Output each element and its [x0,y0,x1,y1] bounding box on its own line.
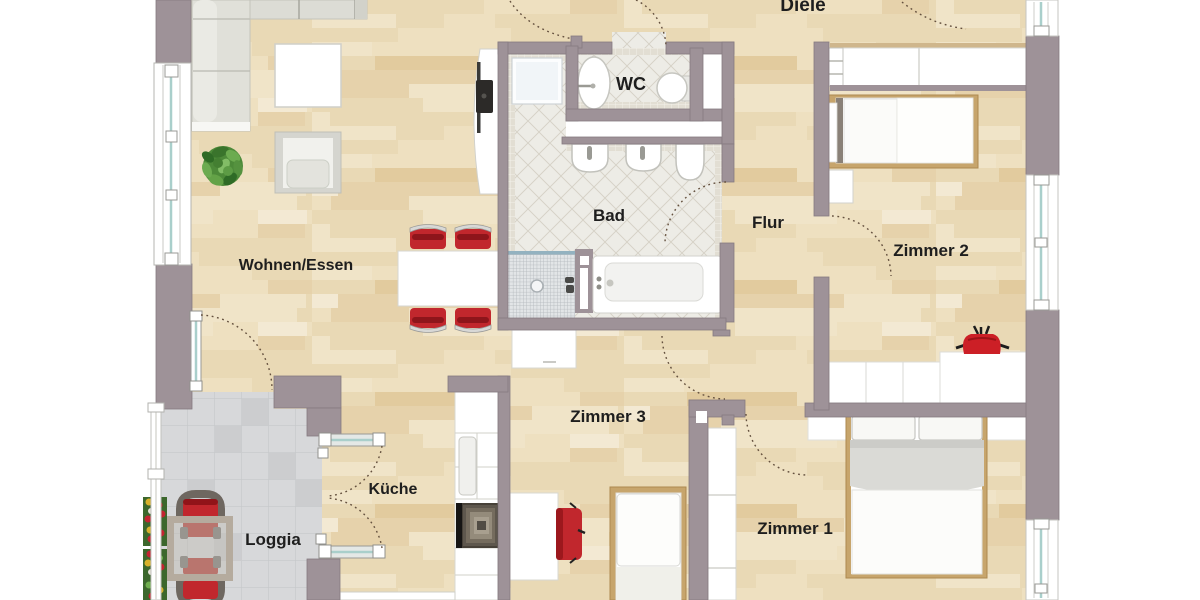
svg-text:WC: WC [616,74,646,94]
svg-text:Diele: Diele [780,0,825,16]
svg-text:Zimmer 2: Zimmer 2 [893,241,969,260]
svg-text:Wohnen/Essen: Wohnen/Essen [239,257,353,274]
svg-text:Zimmer 1: Zimmer 1 [757,519,833,538]
svg-text:Flur: Flur [752,213,784,232]
svg-text:Zimmer 3: Zimmer 3 [570,407,646,426]
svg-text:Küche: Küche [369,481,418,498]
svg-text:Loggia: Loggia [245,530,301,549]
svg-text:Bad: Bad [593,206,625,225]
